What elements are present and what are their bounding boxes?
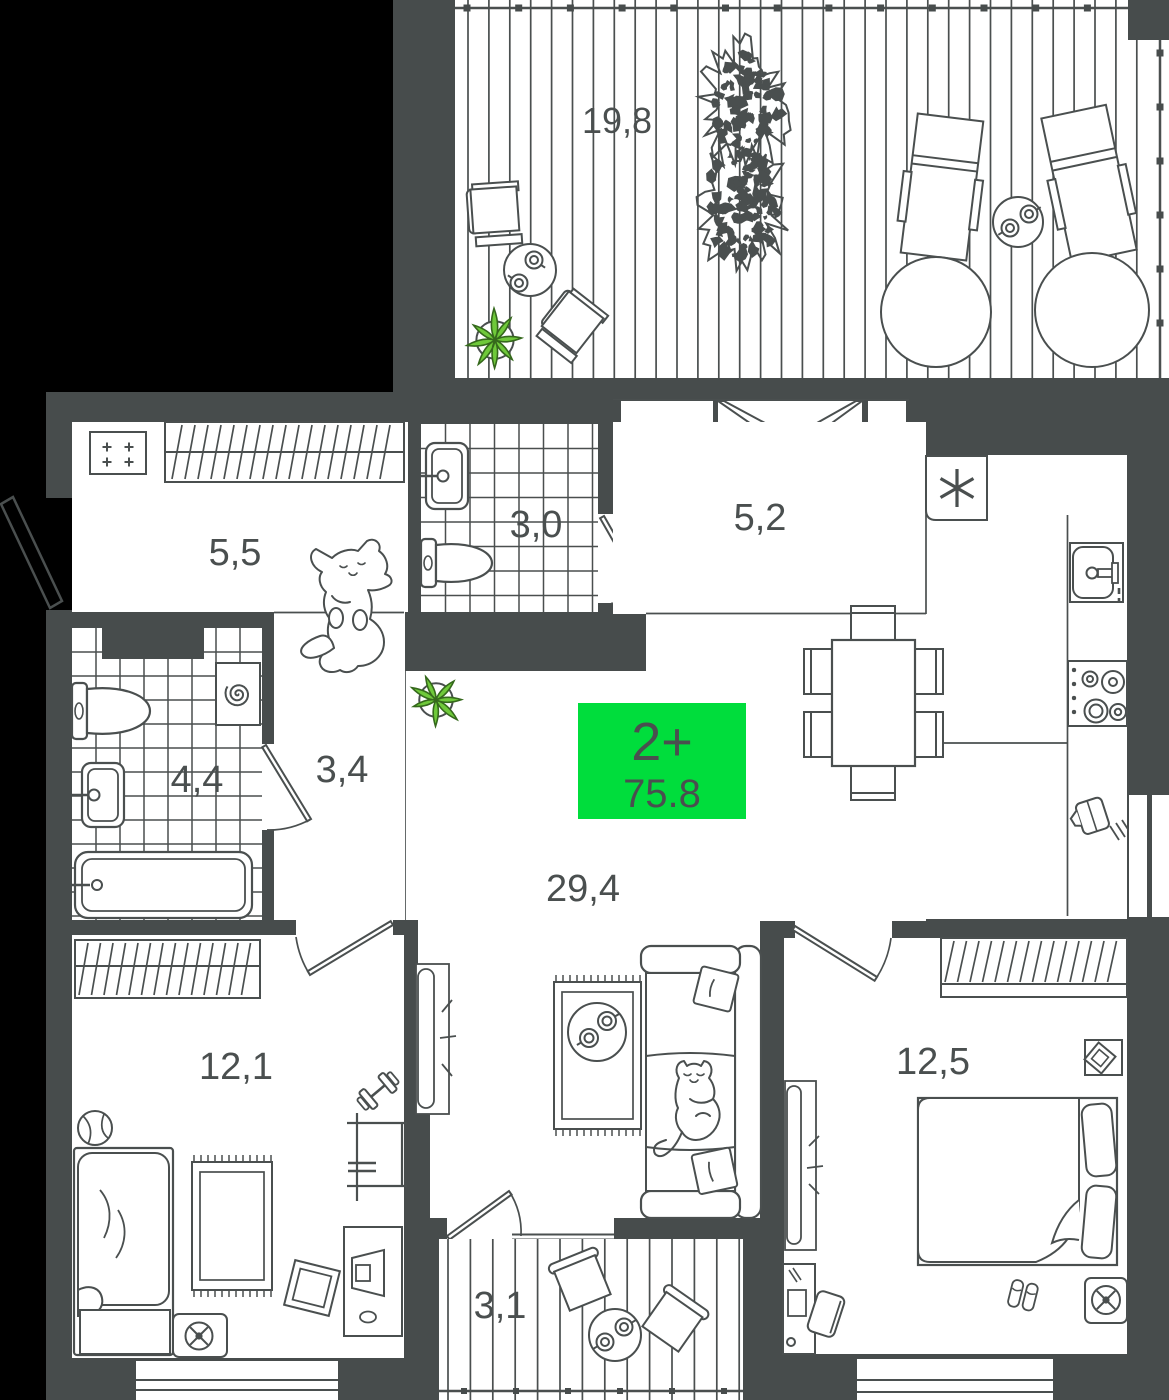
svg-text:19,8: 19,8 xyxy=(582,100,652,141)
svg-text:5,5: 5,5 xyxy=(209,532,262,574)
svg-text:3,4: 3,4 xyxy=(316,749,369,791)
svg-text:3,1: 3,1 xyxy=(474,1285,527,1327)
svg-text:5,2: 5,2 xyxy=(734,497,787,539)
svg-text:12,5: 12,5 xyxy=(896,1041,970,1083)
svg-text:75.8: 75.8 xyxy=(623,772,701,816)
svg-text:29,4: 29,4 xyxy=(546,868,620,910)
svg-text:3,0: 3,0 xyxy=(510,504,563,546)
svg-text:12,1: 12,1 xyxy=(199,1046,273,1088)
svg-text:4,4: 4,4 xyxy=(171,759,224,801)
svg-text:2+: 2+ xyxy=(631,712,693,772)
